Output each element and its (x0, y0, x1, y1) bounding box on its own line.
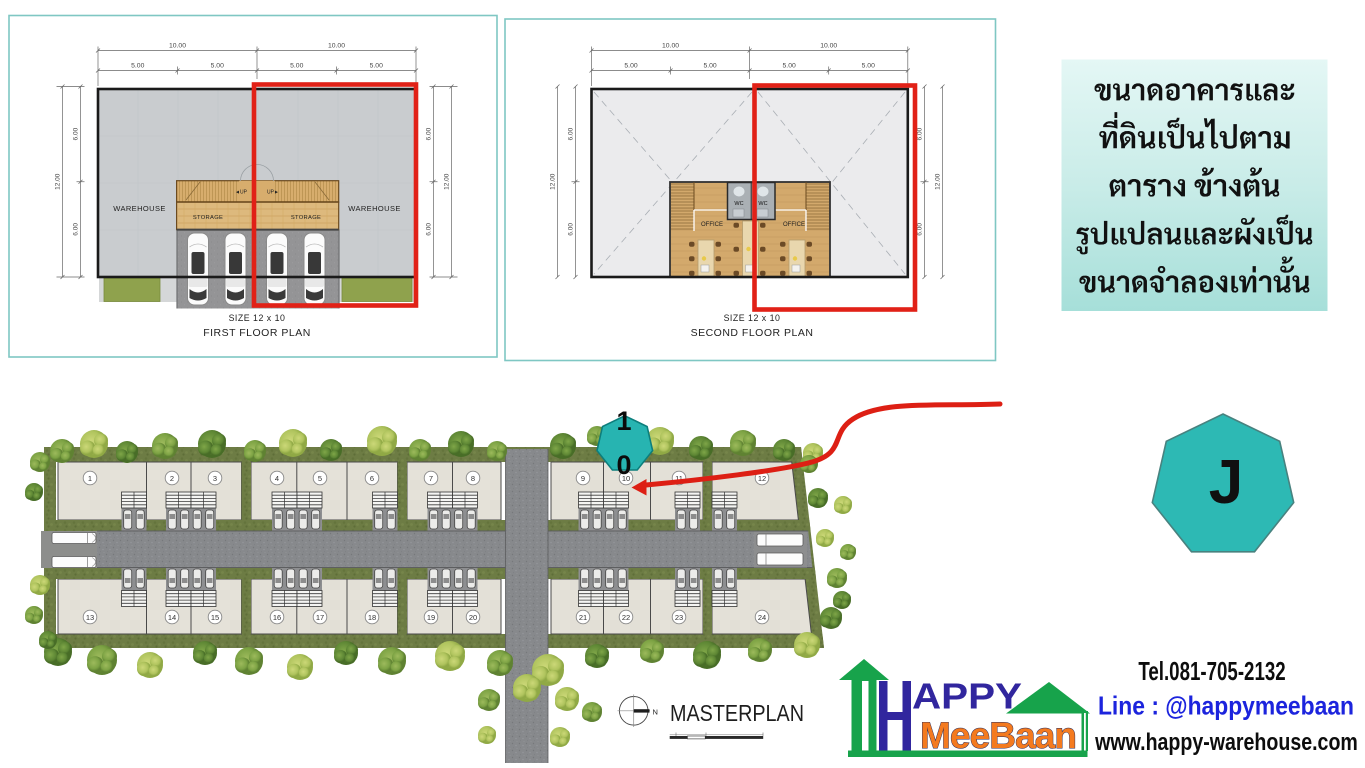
svg-text:2: 2 (170, 474, 174, 483)
svg-text:0: 0 (616, 450, 631, 480)
svg-text:SIZE 12 x 10: SIZE 12 x 10 (724, 313, 781, 323)
svg-text:STORAGE: STORAGE (291, 215, 321, 221)
svg-text:4: 4 (275, 474, 279, 483)
svg-text:6.00: 6.00 (917, 223, 924, 236)
svg-text:21: 21 (579, 613, 587, 622)
svg-text:12.00: 12.00 (444, 173, 451, 190)
svg-text:OFFICE: OFFICE (783, 222, 805, 228)
svg-text:www.happy-warehouse.com: www.happy-warehouse.com (1094, 728, 1358, 756)
svg-text:FIRST FLOOR PLAN: FIRST FLOOR PLAN (203, 327, 311, 339)
svg-text:12.00: 12.00 (935, 173, 942, 190)
svg-text:5.00: 5.00 (290, 63, 303, 70)
svg-text:◄UP: ◄UP (235, 190, 248, 196)
svg-text:UP►: UP► (267, 190, 279, 196)
svg-text:6.00: 6.00 (426, 223, 433, 236)
svg-text:6.00: 6.00 (426, 127, 433, 140)
svg-text:10.00: 10.00 (662, 43, 679, 50)
svg-text:WC: WC (758, 201, 767, 207)
svg-text:8: 8 (471, 474, 475, 483)
svg-text:OFFICE: OFFICE (701, 222, 723, 228)
svg-text:1: 1 (88, 474, 92, 483)
svg-text:N: N (653, 708, 658, 717)
svg-text:6: 6 (370, 474, 374, 483)
svg-text:MeeBaan: MeeBaan (920, 715, 1077, 756)
svg-text:13: 13 (86, 613, 94, 622)
svg-text:7: 7 (429, 474, 433, 483)
svg-text:10.00: 10.00 (820, 43, 837, 50)
svg-text:12: 12 (758, 474, 766, 483)
svg-text:5.00: 5.00 (370, 63, 383, 70)
svg-text:3: 3 (213, 474, 217, 483)
svg-text:5.00: 5.00 (131, 63, 144, 70)
svg-text:6.00: 6.00 (568, 127, 575, 140)
svg-text:6.00: 6.00 (568, 223, 575, 236)
svg-text:SECOND FLOOR PLAN: SECOND FLOOR PLAN (691, 327, 814, 339)
svg-text:12.00: 12.00 (550, 173, 557, 190)
svg-text:19: 19 (427, 613, 435, 622)
svg-text:6.00: 6.00 (73, 223, 80, 236)
svg-text:5.00: 5.00 (862, 63, 875, 70)
svg-text:6.00: 6.00 (917, 127, 924, 140)
svg-text:6.00: 6.00 (73, 127, 80, 140)
svg-text:12.00: 12.00 (55, 173, 62, 190)
svg-text:10.00: 10.00 (169, 43, 186, 50)
svg-text:5.00: 5.00 (624, 63, 637, 70)
svg-text:20: 20 (469, 613, 477, 622)
svg-text:24: 24 (758, 613, 766, 622)
svg-text:5.00: 5.00 (211, 63, 224, 70)
svg-text:5.00: 5.00 (703, 63, 716, 70)
svg-text:15: 15 (211, 613, 219, 622)
svg-text:WC: WC (734, 201, 743, 207)
svg-text:J: J (1209, 448, 1243, 517)
svg-text:9: 9 (581, 474, 585, 483)
svg-text:APPY: APPY (912, 676, 1022, 717)
svg-text:16: 16 (273, 613, 281, 622)
svg-text:Tel.081-705-2132: Tel.081-705-2132 (1138, 656, 1285, 686)
svg-text:18: 18 (368, 613, 376, 622)
svg-text:1: 1 (616, 406, 631, 436)
svg-text:SIZE 12 x 10: SIZE 12 x 10 (229, 313, 286, 323)
svg-text:10.00: 10.00 (328, 43, 345, 50)
svg-text:5: 5 (318, 474, 322, 483)
svg-text:23: 23 (675, 613, 683, 622)
svg-text:5.00: 5.00 (783, 63, 796, 70)
svg-text:MASTERPLAN: MASTERPLAN (670, 701, 804, 727)
svg-text:Line : @happymeebaan: Line : @happymeebaan (1098, 692, 1354, 721)
svg-text:STORAGE: STORAGE (193, 215, 223, 221)
svg-text:14: 14 (168, 613, 176, 622)
svg-text:22: 22 (622, 613, 630, 622)
svg-text:WAREHOUSE: WAREHOUSE (348, 204, 401, 213)
svg-text:17: 17 (316, 613, 324, 622)
svg-text:WAREHOUSE: WAREHOUSE (113, 204, 166, 213)
